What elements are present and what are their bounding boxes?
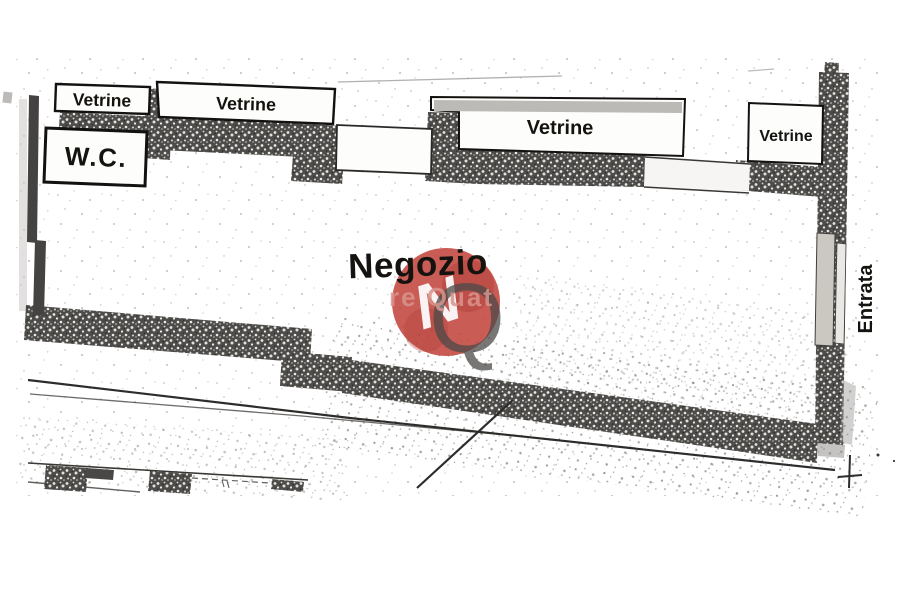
window-label-3: Vetrine <box>527 117 594 140</box>
watermark-text: re Quat <box>389 282 494 312</box>
wall-back-step <box>280 351 352 392</box>
window-label-2: Vetrine <box>216 93 277 115</box>
scan-shadow-left <box>19 99 27 311</box>
scan-dot <box>893 460 895 462</box>
wall-segment <box>44 465 88 492</box>
window-label-1: Vetrine <box>73 89 132 111</box>
wall-segment-bar <box>85 468 114 480</box>
wall-right-top-nub <box>824 62 839 77</box>
room-label-negozio: Negozio <box>348 243 489 287</box>
floorplan-drawing: N Q re Quat Negozio Vetrine Vetrine Vetr… <box>0 0 900 600</box>
window-box-3-glass-strip <box>434 100 682 113</box>
entrance-door-leaf-inner <box>835 243 846 344</box>
floorplan-scan: N Q re Quat Negozio Vetrine Vetrine Vetr… <box>0 0 900 600</box>
entrance-door-leaf <box>815 233 835 346</box>
window-bay-gap <box>336 125 432 174</box>
scan-edge-mark <box>2 92 12 104</box>
wall-segment <box>148 471 192 494</box>
wall-end-line <box>849 455 850 488</box>
wall-right-fade <box>817 443 845 458</box>
wc-room: W.C. <box>44 128 147 186</box>
wall-left-lower <box>33 240 46 316</box>
scan-dot <box>877 454 880 457</box>
wc-label: W.C. <box>64 141 127 173</box>
entrance-label: Entrata <box>855 264 877 334</box>
wall-left-upper <box>27 95 39 243</box>
window-label-4: Vetrine <box>759 128 812 145</box>
